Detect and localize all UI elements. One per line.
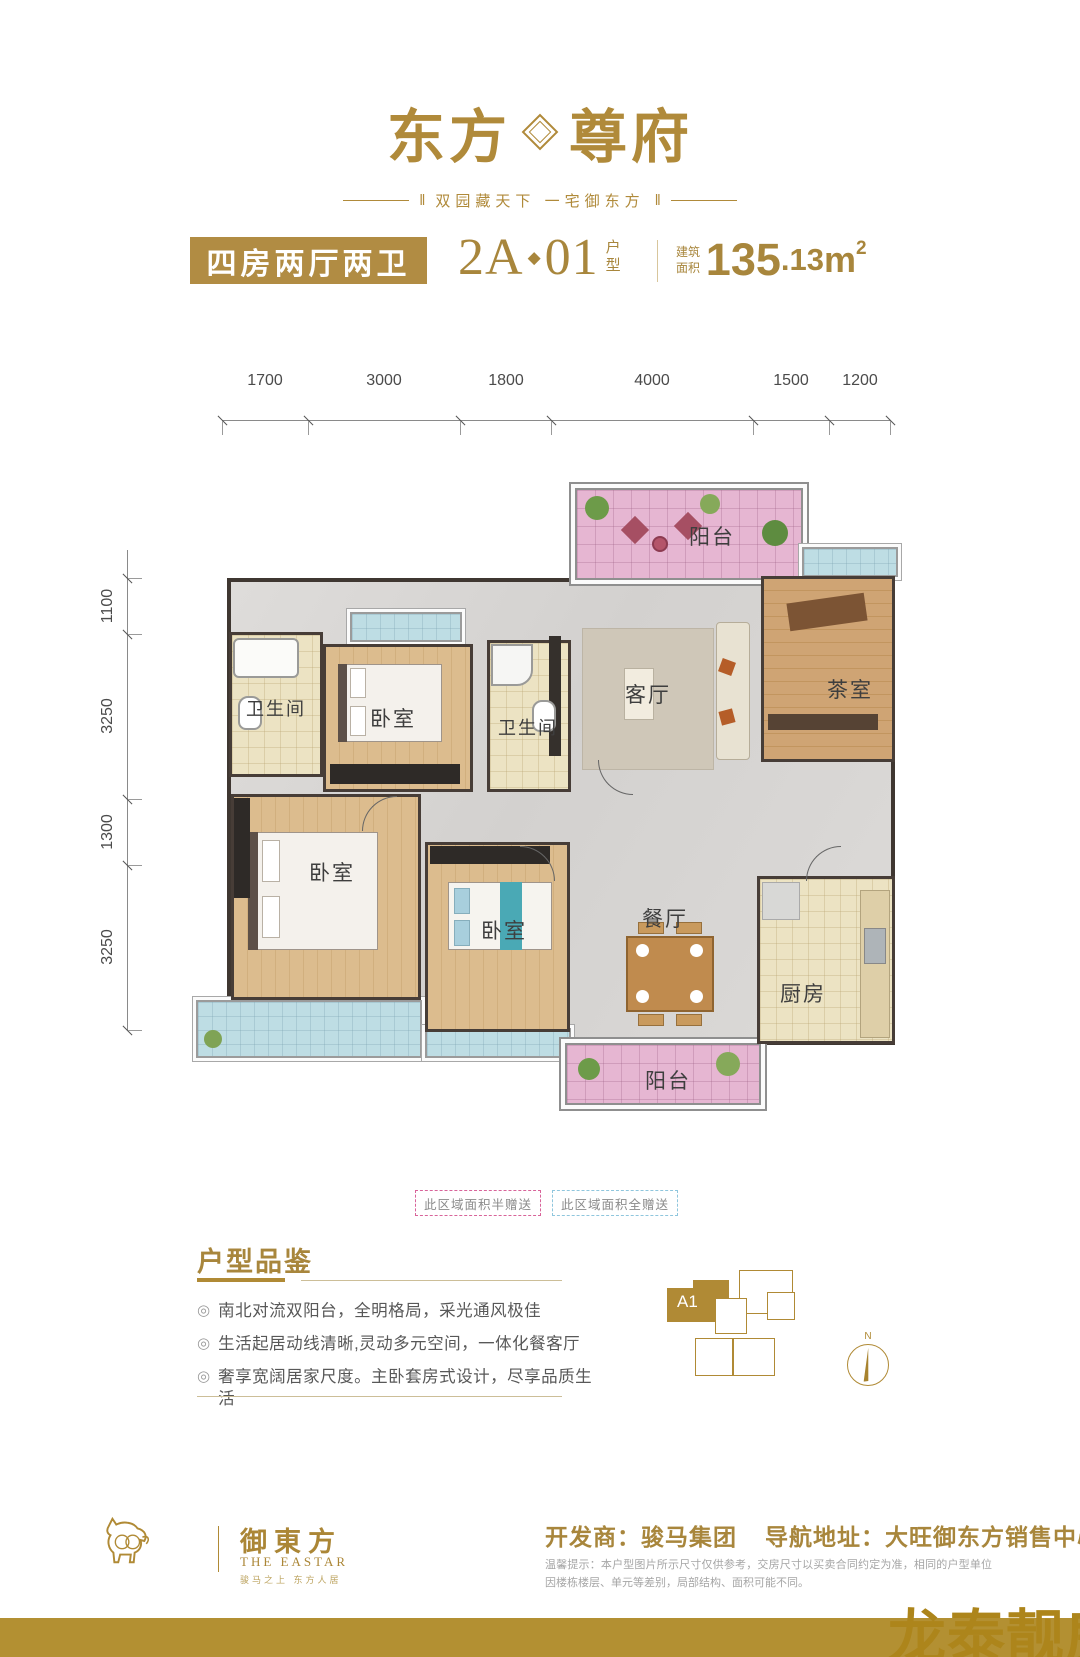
balcony-table-shape [652,536,668,552]
features-list: ◎ 南北对流双阳台，全明格局，采光通风极佳 ◎ 生活起居动线清晰,灵动多元空间，… [197,1300,597,1421]
disclaimer-text: 温馨提示：本户型图片所示尺寸仅供参考，交房尺寸以买卖合同约定为准，相同的户型单位… [545,1556,992,1592]
label-bath-1: 卫生间 [246,695,306,721]
header-divider [657,240,658,282]
unit-code: 2A ◆ 01 户型 [458,230,622,286]
keyplan-block-outline [733,1338,775,1376]
brand-seal-icon [522,114,559,151]
bed2-wardrobe-shape [234,798,250,898]
tagline-rule-left [343,200,409,201]
unit-code-suffix: 户型 [606,239,623,275]
plant-shape [204,1030,222,1048]
chair-shape [638,1014,664,1026]
brand-name: 东方 尊府 [0,90,1080,174]
features-title: 户型品鉴 [197,1240,313,1279]
compass-north-label: N [864,1331,871,1342]
bed3-pillow-shape [454,888,470,914]
sofa-shape [716,622,750,760]
keyplan-unit-label: A1 [677,1292,698,1312]
compass-needle [860,1347,875,1382]
balcony-bed3 [425,1028,571,1058]
footer-brand-en: THE EASTAR [240,1554,348,1570]
dim-top-3: 1800 [488,372,524,390]
plant-shape [762,520,788,546]
developer-text: 开发商：骏马集团 [545,1524,737,1550]
dim-left-2: 3250 [99,686,117,746]
legend-full-gift: 此区域面积全赠送 [552,1190,678,1216]
building-key-plan: A1 N [655,1262,905,1397]
bed1-wardrobe-shape [330,764,460,784]
footer-brand-sub: 骏马之上 东方人居 [240,1573,342,1586]
brand-name-right: 尊府 [569,90,693,174]
legend-half-gift: 此区域面积半赠送 [415,1190,541,1216]
feature-item: ◎ 南北对流双阳台，全明格局，采光通风极佳 [197,1300,597,1322]
dim-ext [128,799,142,800]
keyplan-block-outline [767,1292,795,1320]
plate-shape [690,990,703,1003]
label-bed-3: 卧室 [481,915,527,945]
bed1-pillow-shape [350,706,366,736]
compass-icon: N [847,1344,889,1386]
bed3-pillow-shape [454,920,470,946]
unit-code-main: 2A [458,230,524,286]
feature-item: ◎ 生活起居动线清晰,灵动多元空间，一体化餐客厅 [197,1333,597,1355]
built-area-int: 135 [706,234,781,286]
brand-tagline: ‖ 双园藏天下 一宅御东方 ‖ [0,190,1080,211]
features-title-underline [197,1278,285,1282]
dim-left-4: 3250 [99,917,117,977]
label-bed-1: 卧室 [370,703,416,733]
dim-ext [128,865,142,866]
built-area-dec: .13 [781,234,824,286]
dim-ext [460,421,461,435]
plant-shape [700,494,720,514]
dim-chain-top-line [222,420,890,421]
dim-ext [890,421,891,435]
watermark-text: 龙泰靓房 [888,1590,1080,1657]
plate-shape [690,944,703,957]
dim-left-3: 1300 [99,802,117,862]
dim-ext [128,1030,142,1031]
bed2-pillow-shape [262,896,280,938]
built-area-label: 建筑面积 [676,245,702,276]
tea-sofa-shape [768,714,878,730]
dim-ext [128,578,142,579]
dim-ext [753,421,754,435]
dim-ext [128,634,142,635]
built-area-unit: m [824,234,856,286]
chair-shape [676,1014,702,1026]
dim-top-5: 1500 [773,372,809,390]
dim-top-2: 3000 [366,372,402,390]
label-bath-2: 卫生间 [498,714,558,740]
label-kitchen: 厨房 [780,978,826,1008]
brand-name-left: 东方 [387,90,511,174]
tagline-text: 双园藏天下 一宅御东方 [435,190,644,211]
dim-left-1: 1100 [99,576,117,636]
bullet-icon: ◎ [197,1333,210,1355]
shower-shape [491,644,533,686]
feature-text: 生活起居动线清晰,灵动多元空间，一体化餐客厅 [218,1333,580,1355]
keyplan-block-outline [695,1338,733,1376]
dim-ext [551,421,552,435]
label-living: 客厅 [625,679,671,709]
bed2-pillow-shape [262,840,280,882]
dim-top-6: 1200 [842,372,878,390]
plate-shape [636,944,649,957]
label-balcony-bottom: 阳台 [645,1065,691,1095]
fridge-shape [762,882,800,920]
features-rule-bottom [197,1396,562,1397]
bay-window-tea [802,547,898,577]
built-area-exponent: 2 [856,238,867,260]
floorplan-poster-page: 东方 尊府 ‖ 双园藏天下 一宅御东方 ‖ 四房两厅两卫 2A ◆ 01 户型 … [0,0,1080,1657]
feature-item: ◎ 奢享宽阔居家尺度。主卧套房式设计，尽享品质生活 [197,1366,597,1410]
kitchen-sink-shape [864,928,886,964]
bullet-icon: ◎ [197,1300,210,1322]
bathtub-shape [233,638,299,678]
bed1-headboard-shape [338,664,347,742]
label-bed-2: 卧室 [309,857,355,887]
dim-ext [222,421,223,435]
feature-text: 奢享宽阔居家尺度。主卧套房式设计，尽享品质生活 [218,1366,597,1410]
dim-chain-left-line [127,550,128,1030]
kitchen-counter-shape [860,890,890,1038]
label-dining: 餐厅 [642,903,688,933]
keyplan-block-outline [715,1298,747,1334]
plant-shape [585,496,609,520]
footer-divider [218,1526,219,1572]
label-balcony-top: 阳台 [689,521,735,551]
dim-ext [308,421,309,435]
unit-code-number: 01 [545,230,599,286]
layout-type-badge: 四房两厅两卫 [190,237,427,284]
plate-shape [636,990,649,1003]
tagline-rule-right [671,200,737,201]
unit-code-diamond-icon: ◆ [528,230,541,286]
bay-window-bed1 [350,612,462,642]
bed1-pillow-shape [350,668,366,698]
brand-logo: 东方 尊府 ‖ 双园藏天下 一宅御东方 ‖ [0,90,1080,211]
tagline-bar-left: ‖ [419,192,425,209]
plant-shape [716,1052,740,1076]
features-rule-top [301,1280,562,1281]
plant-shape [578,1058,600,1080]
address-text: 导航地址：大旺御东方销售中心 [765,1524,1080,1550]
feature-text: 南北对流双阳台，全明格局，采光通风极佳 [218,1300,541,1322]
dim-top-4: 4000 [634,372,670,390]
developer-line: 开发商：骏马集团导航地址：大旺御东方销售中心 [545,1518,1080,1552]
dim-top-1: 1700 [247,372,283,390]
tagline-bar-right: ‖ [655,192,661,209]
built-area: 建筑面积 135 .13 m 2 [676,234,867,286]
horse-logo-icon [96,1512,154,1575]
label-tea: 茶室 [827,674,873,704]
balcony-bed2 [196,1000,422,1058]
bullet-icon: ◎ [197,1366,210,1388]
dim-ext [829,421,830,435]
